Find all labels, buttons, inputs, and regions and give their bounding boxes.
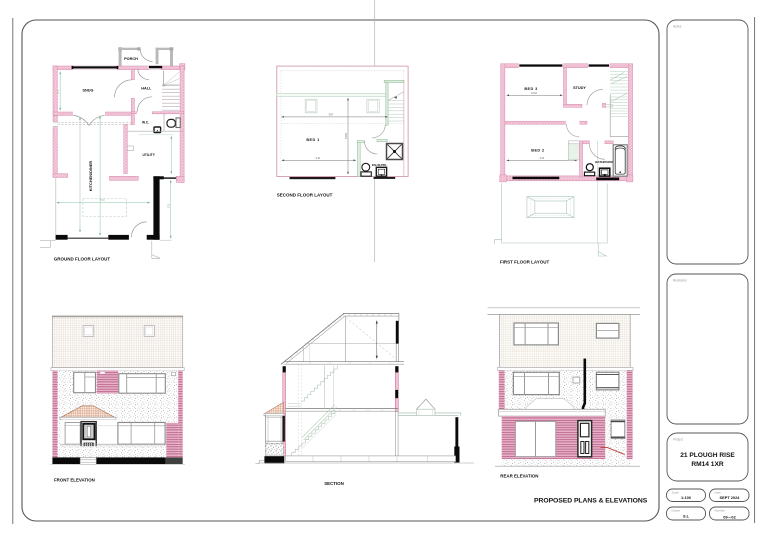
svg-text:4'10: 4'10 — [540, 157, 545, 160]
svg-text:Drawn: Drawn — [672, 509, 681, 513]
svg-text:EN-SUITE: EN-SUITE — [372, 163, 386, 167]
svg-text:Scale: Scale — [672, 491, 680, 495]
svg-text:3'07: 3'07 — [329, 112, 334, 116]
svg-text:RM14 1XR: RM14 1XR — [691, 461, 723, 468]
svg-text:09—02: 09—02 — [723, 515, 736, 520]
svg-text:10'04: 10'04 — [531, 92, 537, 95]
svg-text:STUDY: STUDY — [573, 86, 586, 90]
svg-text:14'05: 14'05 — [344, 132, 348, 139]
svg-text:Notes: Notes — [673, 25, 682, 29]
svg-text:FRONT ELEVATION: FRONT ELEVATION — [54, 477, 95, 482]
svg-text:SECOND FLOOR LAYOUT: SECOND FLOOR LAYOUT — [277, 192, 333, 197]
svg-text:PROPOSED PLANS & ELEVATIONS: PROPOSED PLANS & ELEVATIONS — [534, 497, 648, 504]
svg-text:4'11: 4'11 — [316, 156, 321, 160]
svg-text:BATHROOM: BATHROOM — [595, 160, 613, 164]
svg-text:UTILITY: UTILITY — [142, 153, 155, 157]
svg-text:11'2: 11'2 — [57, 89, 60, 94]
svg-text:KITCHEN/DINER: KITCHEN/DINER — [88, 161, 93, 192]
svg-text:W.C.: W.C. — [142, 121, 149, 125]
svg-text:SECTION: SECTION — [324, 481, 344, 486]
svg-text:BED 3: BED 3 — [524, 87, 537, 91]
svg-text:SEPT 2024: SEPT 2024 — [720, 495, 741, 500]
svg-text:1:100: 1:100 — [681, 495, 691, 500]
svg-text:FIRST FLOOR LAYOUT: FIRST FLOOR LAYOUT — [500, 260, 550, 265]
svg-text:Date: Date — [715, 491, 722, 495]
svg-text:21 PLOUGH RISE: 21 PLOUGH RISE — [680, 452, 735, 459]
svg-text:HALL: HALL — [141, 87, 152, 91]
svg-text:PORCH: PORCH — [124, 57, 138, 61]
svg-text:Project: Project — [673, 438, 683, 442]
svg-text:Revisions: Revisions — [673, 279, 687, 283]
svg-text:3'00: 3'00 — [168, 203, 171, 208]
svg-text:GROUND FLOOR LAYOUT: GROUND FLOOR LAYOUT — [54, 257, 111, 262]
svg-text:REAR ELEVATION: REAR ELEVATION — [500, 474, 538, 479]
svg-text:BED 1: BED 1 — [306, 138, 319, 142]
svg-text:Number: Number — [715, 509, 726, 513]
svg-text:5'10: 5'10 — [100, 199, 105, 202]
svg-text:BED 2: BED 2 — [531, 149, 544, 153]
svg-text:S.L: S.L — [683, 514, 690, 519]
svg-text:SNUG: SNUG — [83, 88, 94, 92]
